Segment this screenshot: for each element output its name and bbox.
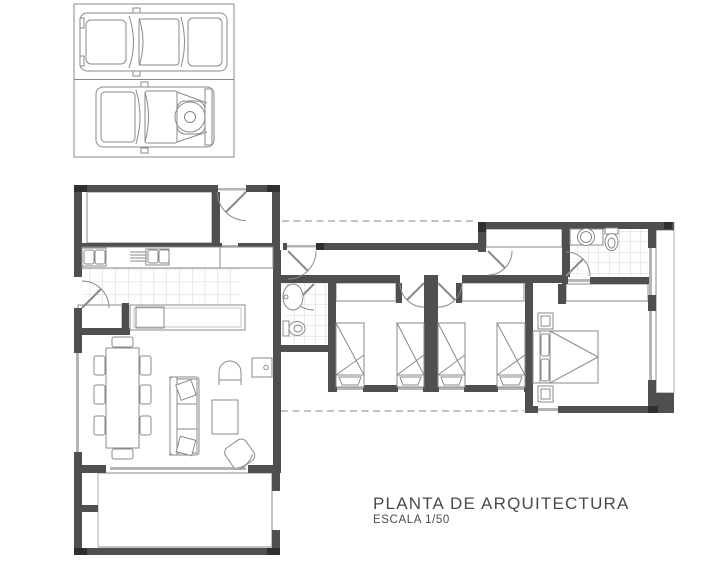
armchair — [219, 361, 241, 385]
headboard — [533, 331, 540, 383]
entry-door — [218, 192, 247, 221]
nightstand — [538, 313, 553, 329]
single-bed — [497, 323, 525, 387]
single-bed — [336, 323, 364, 387]
kitchen-cabinet — [220, 247, 273, 268]
carport-boundary — [74, 4, 234, 157]
title-block: PLANTA DE ARQUITECTURA ESCALA 1/50 — [373, 494, 630, 526]
single-bed — [438, 323, 465, 387]
south-deck — [98, 473, 272, 547]
coffee-table — [212, 400, 238, 434]
plan-scale: ESCALA 1/50 — [373, 514, 450, 526]
nightstand — [538, 386, 553, 402]
entry-threshold — [218, 188, 246, 191]
corridor-threshold — [287, 245, 316, 248]
kitchen-island — [130, 305, 245, 330]
corridor-door — [288, 251, 316, 279]
suv-icon — [96, 82, 214, 153]
toilet-icon — [283, 321, 305, 336]
living-south-glass-door — [110, 467, 246, 470]
dining-chair — [94, 356, 105, 375]
dining-area — [94, 337, 151, 459]
dining-table — [106, 348, 139, 448]
sofa — [170, 377, 199, 456]
single-bed — [397, 323, 424, 387]
bedroom1-closet — [336, 283, 396, 301]
master-entry-closet — [486, 229, 562, 247]
spare-tire-icon — [175, 102, 205, 132]
dining-chair — [94, 416, 105, 435]
east-window-1 — [649, 248, 652, 295]
dining-chair — [140, 385, 151, 404]
master-suite-door — [488, 251, 512, 275]
floor-plan-svg: PLANTA DE ARQUITECTURA ESCALA 1/50 — [0, 0, 728, 582]
bedroom1-door — [400, 283, 424, 307]
dining-chair — [112, 337, 133, 347]
kitchen-hatched-counter — [78, 305, 122, 330]
master-bed — [533, 313, 598, 402]
dining-chair — [112, 449, 133, 459]
pickup-truck-icon — [80, 8, 227, 76]
toilet-icon — [605, 228, 618, 251]
kitchen-sink2-icon — [146, 249, 169, 265]
wood-stove-box — [252, 358, 272, 377]
master-closet — [566, 284, 648, 301]
drawing-sheet: PLANTA DE ARQUITECTURA ESCALA 1/50 — [0, 0, 728, 582]
living-area — [170, 358, 272, 472]
carport — [74, 4, 234, 157]
bedroom2-closet — [462, 283, 524, 301]
throw-pillow — [176, 436, 196, 456]
master-south-window — [538, 408, 558, 411]
kitchen-floor-tiles — [82, 268, 240, 305]
living-west-window — [76, 353, 79, 452]
dining-chair — [140, 416, 151, 435]
dining-chair — [140, 356, 151, 375]
round-sink-icon — [578, 229, 595, 246]
master-bath-threshold — [568, 279, 590, 282]
kitchen-sink-icon — [82, 248, 106, 266]
north-patio-deck — [87, 192, 212, 243]
east-deck — [656, 230, 674, 393]
sink-icon — [283, 284, 303, 310]
dining-chair — [94, 385, 105, 404]
east-window-2 — [649, 311, 652, 380]
plan-title: PLANTA DE ARQUITECTURA — [373, 494, 630, 513]
